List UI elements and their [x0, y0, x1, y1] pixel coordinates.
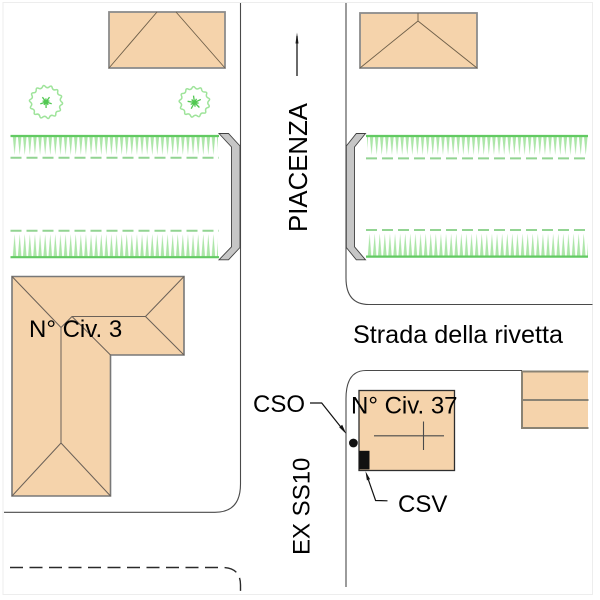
svg-text:N° Civ. 3: N° Civ. 3: [29, 316, 122, 343]
svg-text:Strada della rivetta: Strada della rivetta: [353, 321, 564, 349]
svg-text:PIACENZA: PIACENZA: [285, 102, 313, 232]
svg-text:CSV: CSV: [398, 491, 447, 518]
svg-text:N° Civ. 37: N° Civ. 37: [351, 392, 458, 419]
svg-text:EX SS10: EX SS10: [289, 458, 316, 555]
svg-text:CSO: CSO: [253, 391, 305, 418]
